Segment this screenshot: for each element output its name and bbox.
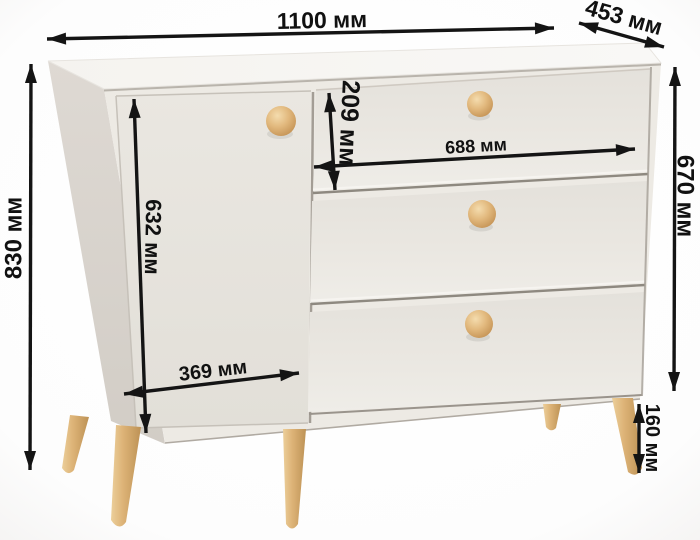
dim-label-leg-height: 160 мм — [641, 404, 663, 473]
dim-arrow-height — [30, 64, 31, 470]
drawer-3-knob — [465, 310, 493, 338]
drawer-2-knob — [468, 200, 496, 228]
dim-label-top-drawer-height: 209 мм — [333, 80, 365, 167]
dim-label-body-height: 670 мм — [672, 155, 699, 237]
dim-label-door-height: 632 мм — [140, 199, 166, 275]
drawer-bottom — [308, 292, 644, 412]
drawer-1-knob — [467, 91, 493, 117]
diagram-canvas: 1100 мм 453 мм 830 мм 670 мм 632 мм 369 … — [0, 0, 700, 540]
furniture-dimension-diagram: 1100 мм 453 мм 830 мм 670 мм 632 мм 369 … — [0, 0, 700, 540]
dim-label-drawer-width: 688 мм — [445, 134, 508, 157]
door-knob — [266, 106, 296, 136]
dim-label-width: 1100 мм — [277, 6, 368, 34]
dim-label-height: 830 мм — [1, 197, 28, 279]
